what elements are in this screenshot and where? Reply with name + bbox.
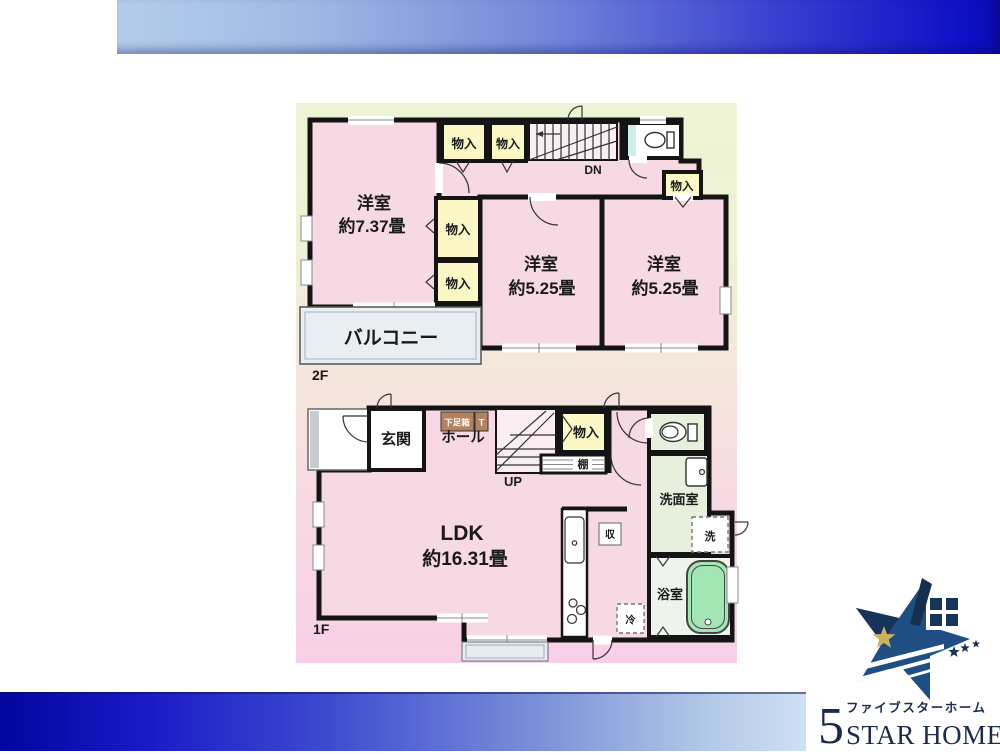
door-arc [735, 522, 748, 535]
company-logo-mark [828, 567, 993, 717]
entrance-label: 玄関 [381, 430, 411, 448]
terrace-step [462, 642, 548, 661]
room-525a-name: 洋室 [524, 254, 558, 274]
entrance-porch [308, 409, 369, 470]
ldk-size: 約16.31畳 [422, 547, 508, 570]
balcony-label: バルコニー [344, 327, 439, 349]
door-gap [435, 163, 443, 193]
logo-five: 5 [818, 706, 844, 748]
room-525b-name: 洋室 [647, 254, 681, 274]
floor2-label: 2F [312, 367, 329, 383]
closet-label: 物入 [451, 136, 477, 151]
room-737-name: 洋室 [357, 193, 391, 213]
window-shutter [720, 287, 731, 314]
floor-2f: バルコニー 洋室 約7.37畳 洋室 約5.25畳 洋室 約5.25畳 物入 物… [300, 106, 731, 383]
shelf: 棚 [541, 455, 606, 473]
bathroom-label: 浴室 [657, 587, 683, 602]
door-gap [645, 418, 653, 438]
small-star-icon [960, 643, 970, 652]
stairs-up-label: UP [504, 474, 522, 489]
floor-1f: 下足箱 T 棚 [308, 393, 748, 661]
kitchen-counter [562, 509, 587, 637]
shoe-box-t-label: T [479, 418, 485, 428]
door-gap [528, 193, 556, 201]
room-737 [310, 120, 439, 307]
ldk-name: LDK [440, 522, 483, 545]
floor1-label: 1F [313, 621, 330, 637]
window-shutter [313, 545, 324, 570]
room-525a-size: 約5.25畳 [508, 278, 575, 298]
star-icon [850, 578, 980, 700]
washer-label: 洗 [705, 529, 716, 543]
fridge-label: 冷 [626, 614, 636, 627]
bathtub-icon [687, 561, 729, 633]
toilet-2f-door-gap [629, 156, 647, 163]
window-shutter [301, 216, 312, 241]
room-525b-size: 約5.25畳 [631, 278, 698, 298]
small-star-icon [948, 646, 959, 657]
shoe-box-label: 下足箱 [444, 418, 470, 428]
logo-latin: STAR HOME [846, 723, 1000, 748]
storage-box: 収 [599, 523, 621, 545]
hall-label: ホール [441, 429, 485, 446]
door-gap [593, 636, 612, 645]
window-shutter [727, 567, 738, 603]
stairs-dn-label: DN [584, 163, 601, 177]
storage-label: 収 [605, 529, 616, 541]
fridge-box: 冷 [617, 604, 644, 633]
vanity-sink-icon [686, 458, 707, 486]
window-shutter [313, 502, 324, 527]
closet-label: 物入 [573, 425, 599, 440]
closet-label: 物入 [496, 136, 520, 151]
room-737-size: 約7.37畳 [338, 216, 405, 236]
toilet-icon-2f [645, 132, 674, 148]
window-shutter [301, 260, 312, 285]
closet-label: 物入 [445, 276, 471, 291]
floorplan-canvas: バルコニー 洋室 約7.37畳 洋室 約5.25畳 洋室 約5.25畳 物入 物… [296, 103, 737, 663]
closet-label: 物入 [671, 179, 694, 193]
company-logo-text: 5 ファイブスターホーム STAR HOME 株式 会社 [818, 700, 998, 748]
washroom-label: 洗面室 [659, 492, 698, 507]
small-star-icon [972, 640, 980, 648]
logo-kana: ファイブスターホーム [846, 697, 1000, 716]
closet-label: 物入 [445, 222, 471, 237]
toilet-icon-1f [660, 423, 697, 442]
toilet-2f-mat [628, 125, 636, 156]
shoe-box: 下足箱 T [441, 412, 488, 431]
header-gradient-bar [117, 0, 1000, 54]
closet-right-gap [673, 193, 693, 201]
footer-gradient-bar [0, 692, 806, 751]
balcony: バルコニー [300, 307, 481, 364]
floorplan-svg: バルコニー 洋室 約7.37畳 洋室 約5.25畳 洋室 約5.25畳 物入 物… [296, 103, 737, 663]
shelf-label: 棚 [578, 457, 589, 471]
